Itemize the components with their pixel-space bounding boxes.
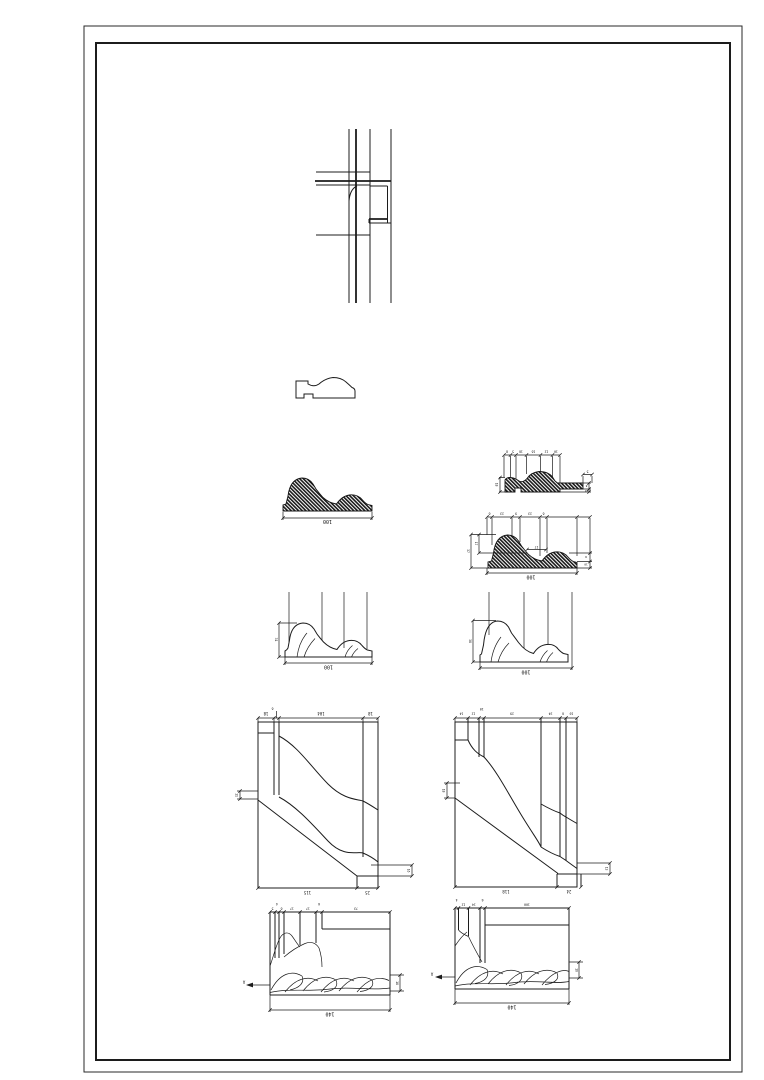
plan-detail-left: 5 4 6 17 17 6 73 18 140 A [242,902,404,1017]
inner-border [96,43,730,1060]
profile-c-dim: 9 [515,512,517,516]
cornice-left-right-dim: 16 [407,869,411,873]
cornice-left-structure [258,722,378,888]
plan-wall-lines [315,129,391,303]
profile-c-right-dim: 8 [585,555,587,559]
plan-left-ticks [268,910,401,1011]
profile-section-a: 100 [281,478,373,524]
cornice-right-structure [455,718,581,887]
cornice-left-bottom-dim: 115 [303,890,311,895]
elev-right-contours [491,637,553,662]
cornice-right-curves [468,740,577,869]
plan-left-dim: 6 [280,907,282,911]
plan-left-dim: 73 [354,907,358,911]
profile-c-dim: 23 [500,512,504,516]
plan-detail-right: 4 12 14 6 100 16 140 A [430,898,583,1010]
profile-section-b: 8 5 16 16 12 10 18 5 8 10 [495,450,594,494]
elev-right-width-label: 100 [521,669,530,675]
profile-a-width-label: 100 [323,518,332,524]
plan-right-section-arrow [435,975,442,980]
wall-plan-detail [315,129,391,303]
cornice-left-side-dim: 11 [235,793,239,797]
profile-c-shape [488,535,577,568]
plan-right-right-dim: 16 [575,968,579,972]
cornice-left-small-dim: 6 [271,707,273,711]
sheet-border [84,26,742,1072]
plan-right-grain-band [455,967,569,986]
cornice-right-dim: 10 [480,707,484,711]
profile-c-width-label: 100 [526,574,535,580]
plan-right-dim: 14 [472,903,476,907]
plan-left-width-label: 140 [325,1011,334,1017]
plan-left-right-dim: 18 [395,981,399,985]
profile-c-dim: 6 [542,512,544,516]
plan-left-dim: 6 [318,902,320,906]
plan-right-section-marker: A [430,972,433,977]
cornice-right-bottom-dim: 118 [502,889,510,894]
profile-c-left-outer: 37 [466,549,470,553]
profile-section-c: 6 23 9 23 6 37 17 17 8 10 100 [466,512,592,580]
profile-b-right-dim: 8 [585,484,587,488]
plan-right-ticks [453,906,580,1004]
profile-b-right-dim: 10 [585,489,589,493]
plan-left-dim: 17 [306,907,310,911]
elev-right-height-label: 38 [468,639,472,643]
profile-c-right-dim: 10 [584,563,588,567]
cornice-right-dim: 6 [562,712,564,716]
cornice-left-ticks [238,716,413,889]
profile-b-shape [505,472,583,493]
cornice-left-dim: 18 [368,711,373,716]
plan-right-dim: 6 [481,898,483,902]
cornice-detail-left: 18 104 18 6 11 16 115 25 [235,707,414,896]
cornice-right-dim: 14 [460,712,464,716]
cornice-right-dim: 12 [472,712,476,716]
cornice-right-dim: 29 [510,712,514,716]
profile-b-left-dim: 18 [495,483,499,487]
profile-c-dim: 23 [528,512,532,516]
plan-left-dim: 4 [276,902,278,906]
profile-b-dim: 10 [554,450,558,454]
plan-right-structure [455,908,569,989]
cornice-right-dim: 10 [570,712,574,716]
elev-left-width-label: 100 [324,664,333,670]
plan-left-grain-band [270,973,390,992]
plan-left-dim: 5 [271,907,273,911]
profile-b-dim: 16 [519,450,523,454]
cad-sheet: 100 8 5 16 16 12 10 18 5 8 10 6 23 9 23 … [0,0,764,1080]
plan-left-dim: 17 [290,907,294,911]
profile-elevation-right: 38 100 [468,592,574,675]
cornice-left-dim: 104 [317,711,325,716]
plan-right-width-label: 140 [507,1004,516,1010]
cornice-right-dim: 24 [549,712,553,716]
profile-b-right-top-dim: 5 [586,470,588,474]
cornice-left-bottom-dim: 25 [365,890,370,895]
elev-left-height-label: 31 [274,638,278,642]
profile-outline-small [296,378,355,399]
profile-c-dim: 6 [488,512,490,516]
profile-elevation-left: 31 100 [274,592,374,670]
plan-left-section-arrow [246,983,253,988]
plan-right-dim-lines [437,962,583,1005]
profile-b-dim: 8 [506,450,508,454]
plan-right-dim: 4 [455,898,457,902]
cornice-right-right-dim: 13 [605,867,609,871]
plan-left-dim-lines [248,975,404,1012]
plan-left-section-marker: A [242,980,245,985]
cornice-left-dim: 18 [263,711,268,716]
profile-b-dim: 12 [545,450,549,454]
outer-border [84,26,742,1072]
cornice-right-side-dim: 18 [442,789,446,793]
profile-b-dim: 5 [512,450,514,454]
profile-a-shape [283,478,372,511]
profile-c-left-inner: 17 [474,542,478,546]
elev-right-ext-lines [473,592,572,670]
plan-right-dim: 100 [524,903,530,907]
cornice-detail-right: 14 12 10 29 24 6 10 18 13 118 24 [442,707,612,894]
profile-c-middle-dim: 17 [535,545,539,549]
cornice-right-bottom-dim: 24 [566,889,571,894]
profile-b-dim: 16 [532,450,536,454]
drawing-canvas: 100 8 5 16 16 12 10 18 5 8 10 6 23 9 23 … [0,0,764,1080]
plan-lines [316,129,391,303]
plan-right-dim: 12 [462,903,466,907]
plan-left-profile-curves [270,933,322,967]
profile-outline-path [296,378,355,399]
